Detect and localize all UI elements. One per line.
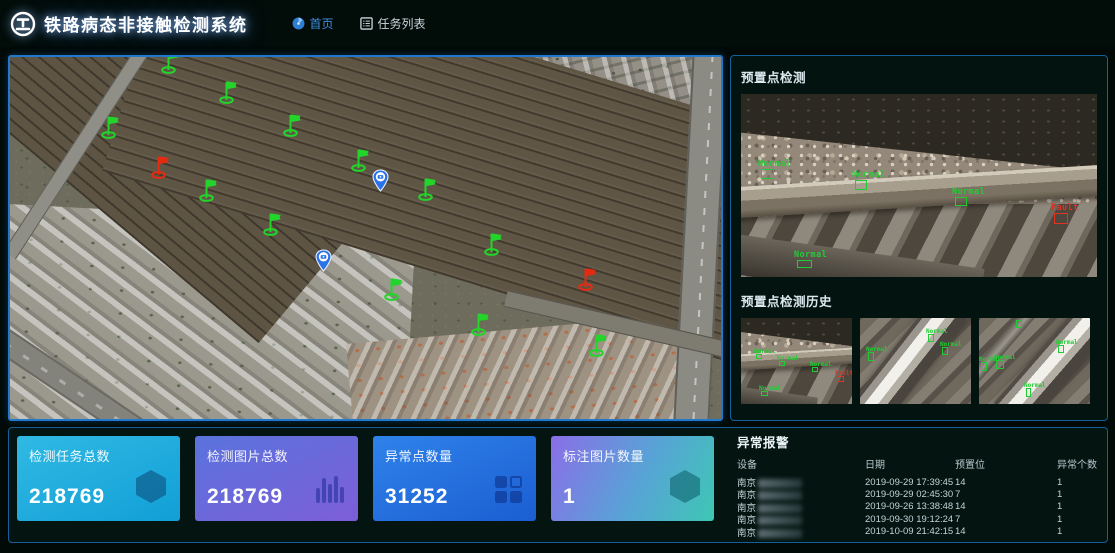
map-marker-flag-green[interactable] bbox=[100, 114, 120, 144]
alarm-table: 异常报警 设备日期预置位异常个数 南京 2019-09-29 17:39:45 … bbox=[737, 432, 1097, 537]
redacted-text bbox=[758, 479, 802, 488]
alarm-count: 1 bbox=[1057, 501, 1097, 512]
brand: 铁路病态非接触检测系统 bbox=[10, 11, 248, 37]
detection-label: Normal bbox=[994, 354, 1016, 361]
satellite-map-panel[interactable] bbox=[8, 55, 723, 421]
alarm-date: 2019-09-30 19:12:24 bbox=[865, 514, 955, 525]
satellite-map-scene bbox=[10, 57, 721, 419]
alarm-date: 2019-09-29 02:45:30 bbox=[865, 489, 955, 500]
alarm-date: 2019-09-29 17:39:45 bbox=[865, 477, 955, 488]
detection-label: Normal bbox=[1024, 382, 1046, 389]
app-header: 铁路病态非接触检测系统 首页 任务列表 bbox=[0, 0, 1115, 47]
map-marker-flag-green[interactable] bbox=[383, 276, 403, 306]
stat-value: 1 bbox=[563, 485, 576, 509]
alarm-date: 2019-10-09 21:42:15 bbox=[865, 526, 955, 537]
detection-label: Fault bbox=[835, 370, 852, 377]
stat-value: 31252 bbox=[385, 485, 448, 509]
map-marker-flag-red[interactable] bbox=[150, 154, 170, 184]
stat-label: 标注图片数量 bbox=[563, 446, 702, 465]
redacted-text bbox=[758, 504, 802, 513]
stat-card: 检测任务总数 218769 bbox=[17, 436, 180, 521]
detection-box-normal: Normal bbox=[1058, 345, 1064, 353]
redacted-text bbox=[758, 516, 802, 525]
detection-box-normal: Normal bbox=[1026, 388, 1031, 397]
alarm-device: 南京 bbox=[737, 525, 865, 539]
detection-label: Normal bbox=[759, 385, 781, 392]
detection-label: Normal bbox=[810, 361, 832, 368]
railway-logo-icon bbox=[10, 11, 36, 37]
history-title: 预置点检测历史 bbox=[741, 291, 1097, 310]
app-title: 铁路病态非接触检测系统 bbox=[44, 11, 248, 36]
stat-cards: 检测任务总数 218769 检测图片总数 218769 异常点数量 31252 … bbox=[17, 436, 714, 521]
alarm-count: 1 bbox=[1057, 489, 1097, 500]
map-marker-flag-green[interactable] bbox=[483, 231, 503, 261]
detection-label: Normal bbox=[794, 250, 827, 260]
detection-label: Normal bbox=[866, 346, 888, 353]
map-marker-flag-green[interactable] bbox=[282, 112, 302, 142]
nav-home[interactable]: 首页 bbox=[292, 15, 334, 32]
detection-box-normal: Normal bbox=[981, 362, 987, 371]
alarm-preset: 7 bbox=[955, 489, 1057, 500]
alarm-preset: 14 bbox=[955, 526, 1057, 537]
map-camera-pin[interactable] bbox=[372, 169, 389, 197]
history-thumbnails: NormalNormalNormalFaultNormalNormalNorma… bbox=[741, 318, 1097, 404]
detection-box-normal: Normal bbox=[756, 354, 762, 359]
stat-label: 检测图片总数 bbox=[207, 446, 346, 465]
redacted-text bbox=[758, 491, 802, 500]
alarm-column-header: 日期 bbox=[865, 456, 955, 471]
alarm-table-header: 设备日期预置位异常个数 bbox=[737, 454, 1097, 475]
map-marker-layer bbox=[10, 57, 721, 419]
detection-box-normal: Normal bbox=[779, 361, 785, 366]
alarm-preset: 14 bbox=[955, 501, 1057, 512]
stat-label: 异常点数量 bbox=[385, 446, 524, 465]
alarm-table-body: 南京 2019-09-29 17:39:45 14 1南京 2019-09-29… bbox=[737, 475, 1097, 537]
detection-box-normal: Normal bbox=[761, 169, 774, 179]
main-nav: 首页 任务列表 bbox=[292, 15, 426, 32]
alarm-title: 异常报警 bbox=[737, 432, 1097, 451]
alarm-row: 南京 2019-10-09 21:42:15 14 1 bbox=[737, 525, 1097, 537]
history-thumbnail[interactable]: NormalNormalNormalNormal bbox=[979, 318, 1090, 404]
detection-box-fault: Fault bbox=[837, 376, 844, 382]
map-marker-flag-green[interactable] bbox=[160, 55, 180, 79]
detection-label: Fault bbox=[1051, 203, 1079, 213]
history-thumbnail[interactable]: NormalNormalNormal bbox=[860, 318, 971, 404]
stat-card: 检测图片总数 218769 bbox=[195, 436, 358, 521]
alarm-count: 1 bbox=[1057, 514, 1097, 525]
detection-box-normal: Normal bbox=[955, 197, 967, 206]
stat-label: 检测任务总数 bbox=[29, 446, 168, 465]
alarm-date: 2019-09-26 13:38:48 bbox=[865, 501, 955, 512]
detection-label: Normal bbox=[940, 341, 962, 348]
detection-label: Normal bbox=[952, 187, 985, 197]
alarm-count: 1 bbox=[1057, 526, 1097, 537]
map-marker-flag-green[interactable] bbox=[470, 311, 490, 341]
detection-label: Normal bbox=[758, 159, 791, 169]
hexagon-icon bbox=[136, 470, 166, 503]
alarm-row: 南京 2019-09-26 13:38:48 14 1 bbox=[737, 500, 1097, 512]
detection-box-normal: Normal bbox=[761, 391, 768, 396]
map-marker-flag-green[interactable] bbox=[350, 147, 370, 177]
nav-home-label: 首页 bbox=[310, 15, 334, 32]
list-icon bbox=[360, 17, 373, 30]
detection-label: Normal bbox=[777, 355, 799, 362]
alarm-row: 南京 2019-09-29 17:39:45 14 1 bbox=[737, 475, 1097, 487]
stats-panel: 检测任务总数 218769 检测图片总数 218769 异常点数量 31252 … bbox=[8, 427, 1108, 543]
alarm-column-header: 异常个数 bbox=[1057, 456, 1097, 471]
map-camera-pin[interactable] bbox=[315, 249, 332, 277]
detection-box-normal: Normal bbox=[996, 360, 1004, 369]
map-marker-flag-green[interactable] bbox=[262, 211, 282, 241]
detection-box-normal: Normal bbox=[868, 352, 874, 361]
stat-card: 异常点数量 31252 bbox=[373, 436, 536, 521]
dashboard-icon bbox=[292, 17, 305, 30]
alarm-column-header: 设备 bbox=[737, 456, 865, 471]
detection-box-normal: Normal bbox=[797, 260, 812, 268]
grid-icon bbox=[495, 476, 522, 503]
alarm-count: 1 bbox=[1057, 477, 1097, 488]
stat-value: 218769 bbox=[29, 485, 105, 509]
map-marker-flag-green[interactable] bbox=[417, 176, 437, 206]
nav-task-list[interactable]: 任务列表 bbox=[360, 15, 426, 32]
stat-card: 标注图片数量 1 bbox=[551, 436, 714, 521]
detection-label: Normal bbox=[1056, 339, 1078, 346]
preset-detection-panel: 预置点检测 NormalNormalNormalFaultNormal 预置点检… bbox=[730, 55, 1108, 421]
map-marker-flag-green[interactable] bbox=[198, 177, 218, 207]
map-marker-flag-red[interactable] bbox=[577, 266, 597, 296]
detection-label: Normal bbox=[754, 348, 776, 355]
bars-icon bbox=[316, 476, 344, 503]
stat-value: 218769 bbox=[207, 485, 283, 509]
detection-box-normal: Normal bbox=[812, 367, 818, 372]
hexagon-icon bbox=[670, 470, 700, 503]
nav-task-list-label: 任务列表 bbox=[378, 15, 426, 32]
detection-box-normal: Normal bbox=[855, 180, 867, 190]
map-marker-flag-green[interactable] bbox=[588, 332, 608, 362]
alarm-preset: 7 bbox=[955, 514, 1057, 525]
redacted-text bbox=[758, 529, 802, 538]
map-marker-flag-green[interactable] bbox=[218, 79, 238, 109]
detection-box-normal: Normal bbox=[942, 347, 948, 355]
detection-box-normal: Normal bbox=[928, 334, 934, 342]
detection-label: Normal bbox=[852, 170, 885, 180]
alarm-preset: 14 bbox=[955, 477, 1057, 488]
alarm-column-header: 预置位 bbox=[955, 456, 1057, 471]
alarm-row: 南京 2019-09-30 19:12:24 7 1 bbox=[737, 512, 1097, 524]
detection-box-fault: Fault bbox=[1054, 213, 1068, 224]
alarm-row: 南京 2019-09-29 02:45:30 7 1 bbox=[737, 487, 1097, 499]
preset-detection-title: 预置点检测 bbox=[741, 67, 1097, 86]
history-thumbnail[interactable]: NormalNormalNormalFaultNormal bbox=[741, 318, 852, 404]
detection-image: NormalNormalNormalFaultNormal bbox=[741, 94, 1097, 277]
detection-box-normal bbox=[1016, 320, 1022, 328]
detection-label: Normal bbox=[926, 328, 948, 335]
